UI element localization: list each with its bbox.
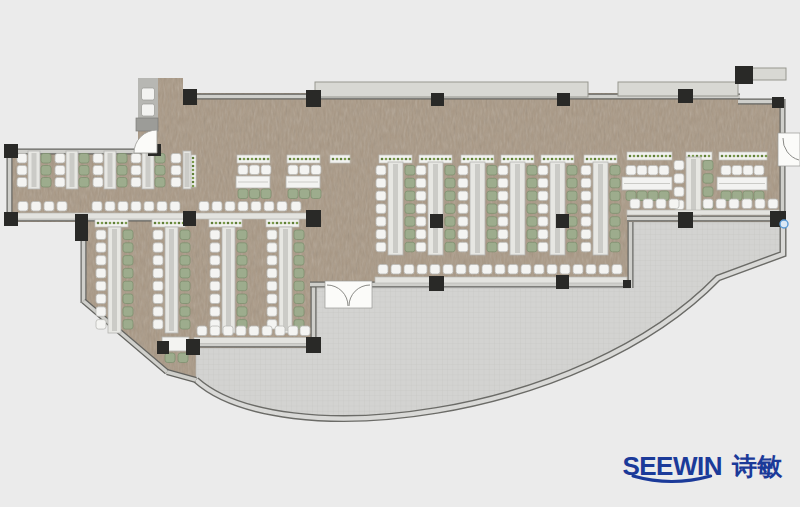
chair-green: [405, 217, 415, 227]
planter-plant: [239, 158, 242, 161]
chair-green: [123, 268, 133, 278]
structural-column: [772, 97, 784, 108]
chair-white: [93, 166, 103, 176]
chair-green: [41, 166, 51, 176]
desk-run: [55, 151, 89, 189]
chair-white: [458, 217, 468, 227]
floor-plan-svg: [0, 0, 800, 507]
planter-plant: [268, 222, 271, 225]
chair-white: [674, 174, 684, 184]
chair-white: [96, 230, 106, 240]
planter-plant: [389, 158, 392, 161]
chair-green: [79, 178, 89, 188]
chair-white: [495, 265, 505, 275]
structural-column: [678, 89, 693, 103]
planter-plant: [610, 158, 613, 161]
logo-swoosh-path: [634, 476, 711, 482]
chair-green: [294, 281, 304, 291]
chair-white: [416, 230, 426, 240]
chair-green: [261, 189, 271, 199]
chair-green: [237, 256, 247, 266]
chair-white: [376, 178, 386, 188]
chair-white: [560, 265, 570, 275]
structural-column: [556, 214, 569, 228]
chair-white: [223, 326, 233, 336]
desk-run: [17, 151, 51, 189]
planter-plant: [449, 158, 452, 161]
planter-plant: [397, 158, 400, 161]
planter-plant: [421, 158, 424, 161]
chair-green: [405, 191, 415, 201]
planter-plant: [629, 155, 632, 158]
counter-top: [12, 213, 308, 219]
chair-white: [267, 256, 277, 266]
planter-plant: [729, 155, 732, 158]
desk-bench-spine: [555, 164, 560, 253]
planter-plant: [170, 222, 173, 225]
planter: [95, 219, 128, 227]
planter-plant: [192, 185, 195, 188]
core-panel: [142, 88, 155, 100]
chair-white: [573, 265, 583, 275]
planter: [719, 152, 767, 160]
planter-plant: [753, 155, 756, 158]
chair-white: [171, 154, 181, 164]
chair-white: [626, 166, 636, 176]
chair-white: [498, 230, 508, 240]
planter-plant: [192, 169, 195, 172]
chair-white: [376, 230, 386, 240]
chair-white: [153, 307, 163, 317]
chair-white: [157, 202, 167, 212]
chair-white: [210, 230, 220, 240]
chair-green: [250, 189, 260, 199]
chair-white: [404, 265, 414, 275]
chair-green: [117, 178, 127, 188]
planter-plant: [425, 158, 428, 161]
chair-white: [96, 320, 106, 330]
chair-green: [155, 166, 165, 176]
planter-plant: [661, 155, 664, 158]
core-cap: [136, 118, 158, 131]
chair-green: [311, 189, 321, 199]
chair-white: [376, 166, 386, 176]
planter-plant: [637, 155, 640, 158]
chair-white: [391, 265, 401, 275]
chair-white: [131, 154, 141, 164]
planter-plant: [284, 222, 287, 225]
planter-plant: [336, 158, 339, 161]
chair-white: [153, 281, 163, 291]
planter-plant: [166, 222, 169, 225]
desk-bench-spine: [691, 159, 696, 213]
chair-white: [17, 154, 27, 164]
chair-white: [581, 230, 591, 240]
planter-plant: [158, 222, 161, 225]
planter-plant: [467, 158, 470, 161]
chair-white: [105, 202, 115, 212]
chair-green: [527, 204, 537, 214]
chair-green: [405, 178, 415, 188]
brand-cjk: 诗敏: [732, 454, 782, 479]
planter-plant: [761, 155, 764, 158]
chair-green: [405, 204, 415, 214]
chair-white: [732, 166, 742, 176]
planter-plant: [267, 158, 270, 161]
chair-green: [237, 268, 247, 278]
chair-white: [96, 307, 106, 317]
chair-green: [237, 294, 247, 304]
chair-white: [18, 202, 28, 212]
chair-white: [376, 242, 386, 252]
chair-green: [487, 230, 497, 240]
desk-bench-spine: [169, 229, 174, 331]
planter-plant: [645, 155, 648, 158]
planter-plant: [255, 158, 258, 161]
planter-plant: [433, 158, 436, 161]
chair-green: [237, 243, 247, 253]
chair-white: [581, 204, 591, 214]
chair-white: [92, 202, 102, 212]
chair-green: [527, 230, 537, 240]
chair-white: [716, 199, 726, 209]
chair-white: [456, 265, 466, 275]
structural-column: [557, 93, 570, 106]
desk-bench-spine: [393, 164, 398, 253]
planter-plant: [649, 155, 652, 158]
chair-white: [581, 242, 591, 252]
planter-plant: [340, 158, 343, 161]
brand-wordmark: SEEWIN: [622, 453, 722, 479]
planter-plant: [543, 158, 546, 161]
chair-green: [445, 204, 455, 214]
chair-white: [508, 265, 518, 275]
planter-plant: [348, 158, 351, 161]
chair-green: [180, 230, 190, 240]
planter: [237, 155, 270, 163]
planter-plant: [223, 222, 226, 225]
planter-plant: [105, 222, 108, 225]
planter-plant: [385, 158, 388, 161]
chair-white: [538, 230, 548, 240]
chair-white: [458, 178, 468, 188]
chair-white: [674, 161, 684, 171]
chair-white: [742, 199, 752, 209]
chair-white: [96, 268, 106, 278]
planter-plant: [297, 158, 300, 161]
chair-white: [416, 217, 426, 227]
chair-white: [458, 242, 468, 252]
planter-plant: [97, 222, 100, 225]
chair-green: [405, 242, 415, 252]
planter-plant: [511, 158, 514, 161]
chair-white: [659, 166, 669, 176]
chair-white: [498, 166, 508, 176]
chair-green: [117, 166, 127, 176]
chair-green: [237, 307, 247, 317]
chair-white: [153, 230, 163, 240]
structural-column: [306, 90, 321, 107]
planter-plant: [551, 158, 554, 161]
chair-green: [567, 178, 577, 188]
desk-bench-spine: [515, 164, 520, 253]
structural-column: [431, 93, 444, 106]
chair-white: [469, 265, 479, 275]
planter-plant: [479, 158, 482, 161]
planter-plant: [409, 158, 412, 161]
chair-green: [703, 161, 713, 171]
desk-bench-spine: [108, 153, 113, 187]
planter-plant: [507, 158, 510, 161]
chair-green: [180, 256, 190, 266]
planter-plant: [125, 222, 128, 225]
chair-green: [294, 307, 304, 317]
chair-white: [210, 326, 220, 336]
planter-plant: [401, 158, 404, 161]
selection-handle: [780, 220, 788, 228]
planter-plant: [555, 158, 558, 161]
chair-green: [445, 217, 455, 227]
chair-green: [294, 256, 304, 266]
structural-column: [678, 212, 693, 228]
planter: [152, 219, 185, 227]
planter: [627, 152, 672, 160]
chair-white: [581, 217, 591, 227]
chair-green: [294, 243, 304, 253]
planter-plant: [765, 155, 768, 158]
planter-plant: [162, 222, 165, 225]
planter-plant: [563, 158, 566, 161]
chair-white: [267, 281, 277, 291]
chair-white: [498, 204, 508, 214]
planter-plant: [332, 158, 335, 161]
chair-white: [538, 178, 548, 188]
chair-green: [123, 320, 133, 330]
chair-green: [41, 154, 51, 164]
chair-white: [416, 242, 426, 252]
chair-green: [405, 166, 415, 176]
chair-white: [538, 204, 548, 214]
chair-white: [458, 166, 468, 176]
planter-plant: [547, 158, 550, 161]
chair-green: [300, 189, 310, 199]
desk-bench-spine: [70, 153, 75, 187]
window-counter: [194, 326, 312, 344]
chair-green: [610, 217, 620, 227]
chair-white: [538, 191, 548, 201]
chair-green: [703, 187, 713, 197]
desk-cluster: [717, 166, 767, 201]
chair-green: [703, 174, 713, 184]
planter-plant: [405, 158, 408, 161]
desk-cluster: [286, 165, 321, 199]
planter-plant: [745, 155, 748, 158]
chair-white: [376, 191, 386, 201]
chair-white: [251, 202, 261, 212]
planter-plant: [344, 158, 347, 161]
structural-column: [306, 337, 321, 353]
chair-white: [581, 166, 591, 176]
planter-plant: [475, 158, 478, 161]
chair-white: [498, 191, 508, 201]
chair-white: [755, 199, 765, 209]
structural-column: [429, 276, 444, 291]
planter-plant: [606, 158, 609, 161]
planter-plant: [559, 158, 562, 161]
desk-bench-spine: [283, 229, 288, 331]
canopy-slab: [315, 82, 588, 97]
chair-white: [443, 265, 453, 275]
chair-green: [180, 307, 190, 317]
brand-logo: SEEWIN 诗敏: [622, 453, 782, 479]
counter-top: [194, 338, 312, 344]
planter-plant: [471, 158, 474, 161]
chair-green: [610, 191, 620, 201]
chair-white: [376, 204, 386, 214]
chair-green: [180, 294, 190, 304]
side-door-opening: [778, 133, 800, 166]
window-counter: [627, 199, 779, 215]
chair-green: [567, 166, 577, 176]
planter-plant: [154, 222, 157, 225]
planter-plant: [192, 177, 195, 180]
chair-green: [294, 230, 304, 240]
planter-plant: [192, 157, 195, 160]
chair-green: [527, 191, 537, 201]
chair-green: [180, 320, 190, 330]
chair-white: [199, 202, 209, 212]
planter-plant: [602, 158, 605, 161]
chair-green: [445, 230, 455, 240]
chair-white: [267, 307, 277, 317]
chair-white: [131, 202, 141, 212]
planter-plant: [733, 155, 736, 158]
chair-green: [527, 178, 537, 188]
desk-bench-spine: [112, 229, 117, 331]
planter: [330, 155, 350, 163]
chair-white: [31, 202, 41, 212]
chair-white: [17, 166, 27, 176]
chair-green: [123, 243, 133, 253]
chair-white: [417, 265, 427, 275]
chair-green: [288, 189, 298, 199]
planter: [266, 219, 299, 227]
planter-plant: [192, 181, 195, 184]
chair-white: [153, 243, 163, 253]
chair-white: [288, 326, 298, 336]
planter-plant: [393, 158, 396, 161]
chair-white: [669, 199, 679, 209]
desk-bench-spine: [226, 229, 231, 331]
planter-plant: [178, 222, 181, 225]
chair-green: [527, 166, 537, 176]
planter-plant: [749, 155, 752, 158]
chair-green: [180, 268, 190, 278]
planter-plant: [571, 158, 574, 161]
chair-white: [674, 187, 684, 197]
planter-plant: [113, 222, 116, 225]
planter-plant: [737, 155, 740, 158]
double-door-opening: [325, 281, 372, 308]
planter-plant: [653, 155, 656, 158]
chair-white: [17, 178, 27, 188]
planter-plant: [665, 155, 668, 158]
structural-column: [183, 89, 197, 105]
chair-green: [41, 178, 51, 188]
chair-white: [581, 178, 591, 188]
chair-white: [55, 154, 65, 164]
desk-run: [131, 151, 165, 189]
planter-plant: [101, 222, 104, 225]
desk-bench-spine: [433, 164, 438, 253]
chair-green: [567, 242, 577, 252]
planter-plant: [669, 155, 672, 158]
chair-white: [131, 178, 141, 188]
chair-white: [267, 243, 277, 253]
chair-white: [250, 165, 260, 175]
planter-plant: [463, 158, 466, 161]
chair-green: [238, 189, 248, 199]
planter-plant: [590, 158, 593, 161]
chair-green: [445, 178, 455, 188]
structural-column: [4, 144, 18, 158]
chair-green: [123, 307, 133, 317]
chair-white: [249, 326, 259, 336]
chair-white: [225, 202, 235, 212]
chair-green: [123, 281, 133, 291]
chair-green: [155, 178, 165, 188]
floor-plan: SEEWIN 诗敏: [0, 0, 800, 507]
planter-plant: [381, 158, 384, 161]
chair-white: [538, 166, 548, 176]
chair-white: [643, 199, 653, 209]
planter-plant: [192, 173, 195, 176]
chair-white: [482, 265, 492, 275]
planter-plant: [523, 158, 526, 161]
chair-white: [118, 202, 128, 212]
chair-white: [55, 166, 65, 176]
chair-white: [171, 166, 181, 176]
counter-top: [375, 277, 627, 283]
chair-green: [567, 230, 577, 240]
planter-plant: [263, 158, 266, 161]
structural-column: [430, 214, 443, 228]
chair-green: [294, 268, 304, 278]
chair-green: [610, 178, 620, 188]
chair-white: [311, 165, 321, 175]
chair-white: [267, 268, 277, 278]
chair-white: [538, 217, 548, 227]
planter-plant: [215, 222, 218, 225]
core-shaft-body: [138, 78, 158, 124]
chair-green: [610, 230, 620, 240]
planter-plant: [503, 158, 506, 161]
chair-white: [210, 281, 220, 291]
chair-green: [487, 242, 497, 252]
structural-column: [4, 212, 18, 226]
chair-white: [238, 202, 248, 212]
planter-plant: [491, 158, 494, 161]
chair-white: [291, 202, 301, 212]
desk-bench-spine: [185, 153, 190, 187]
planter-plant: [227, 222, 230, 225]
chair-white: [236, 326, 246, 336]
planter-plant: [708, 155, 711, 158]
core-panel: [142, 104, 155, 116]
desk-run: [171, 151, 191, 189]
chair-white: [648, 166, 658, 176]
chair-green: [445, 166, 455, 176]
